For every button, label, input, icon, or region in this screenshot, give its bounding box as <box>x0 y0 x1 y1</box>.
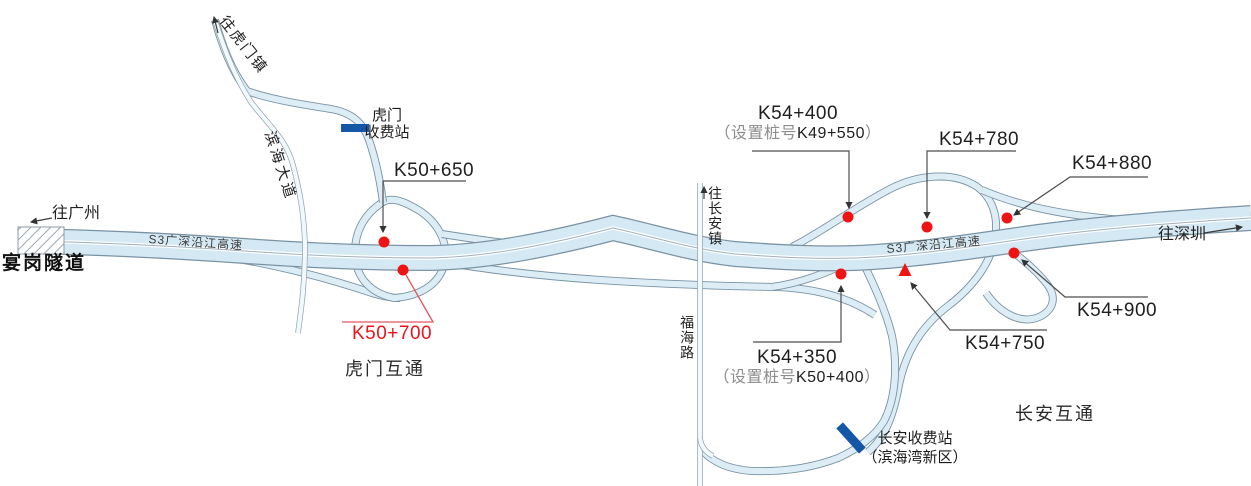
marker-dot-k54-350 <box>836 269 847 280</box>
to-changan-town-label: 往长安镇 <box>707 186 723 246</box>
marker-dot-k54-780 <box>922 222 933 233</box>
marker-dot-k54-400 <box>843 212 854 223</box>
to-guangzhou-label: 往广州 <box>52 205 100 223</box>
marker-label-k54-780: K54+780 <box>939 129 1019 151</box>
fuhai-road-label: 福海路 <box>679 315 695 360</box>
humen-toll-station-line2: 收费站 <box>358 124 416 141</box>
to-guangzhou-arrow-icon <box>31 218 52 222</box>
marker-note-k54-400: （设置桩号K49+550） <box>712 125 884 143</box>
marker-label-block-k54-350: K54+350 （设置桩号K50+400） <box>712 347 882 387</box>
humen-toll-station-label: 虎门 收费站 <box>358 107 416 141</box>
marker-label-k50-700: K50+700 <box>352 323 432 345</box>
marker-note-k54-350: （设置桩号K50+400） <box>712 369 882 387</box>
marker-dot-k50-650 <box>379 237 390 248</box>
to-shenzhen-label: 往深圳 <box>1158 226 1206 244</box>
marker-label-block-k54-400: K54+400 （设置桩号K49+550） <box>712 103 884 143</box>
humen-toll-station-line1: 虎门 <box>358 107 416 124</box>
changan-toll-station-label: 长安收费站 （滨海湾新区） <box>862 429 968 467</box>
schematic-road-map: 宴岗隧道 往广州 S3广深沿江高速 往虎门镇 滨海大道 虎门 收费站 K50+6… <box>0 0 1251 486</box>
humen-interchange-ramps <box>215 20 875 315</box>
marker-dot-k54-900 <box>1009 248 1020 259</box>
changan-toll-station-line2: （滨海湾新区） <box>862 448 968 467</box>
marker-label-k54-400: K54+400 <box>712 103 884 125</box>
marker-label-k54-900: K54+900 <box>1077 300 1157 322</box>
yangang-tunnel-label: 宴岗隧道 <box>2 253 86 275</box>
marker-dot-k50-700 <box>398 265 409 276</box>
changan-interchange-label: 长安互通 <box>1015 404 1095 425</box>
changan-toll-station-line1: 长安收费站 <box>862 429 968 448</box>
marker-dot-k54-880 <box>1002 213 1013 224</box>
marker-label-k54-350: K54+350 <box>712 347 882 369</box>
marker-label-k50-650: K50+650 <box>394 160 474 182</box>
yangang-tunnel-box <box>18 227 64 254</box>
direction-arrows <box>31 17 1242 233</box>
humen-interchange-label: 虎门互通 <box>345 359 425 380</box>
marker-label-k54-750: K54+750 <box>965 333 1045 355</box>
marker-label-k54-880: K54+880 <box>1072 153 1152 175</box>
